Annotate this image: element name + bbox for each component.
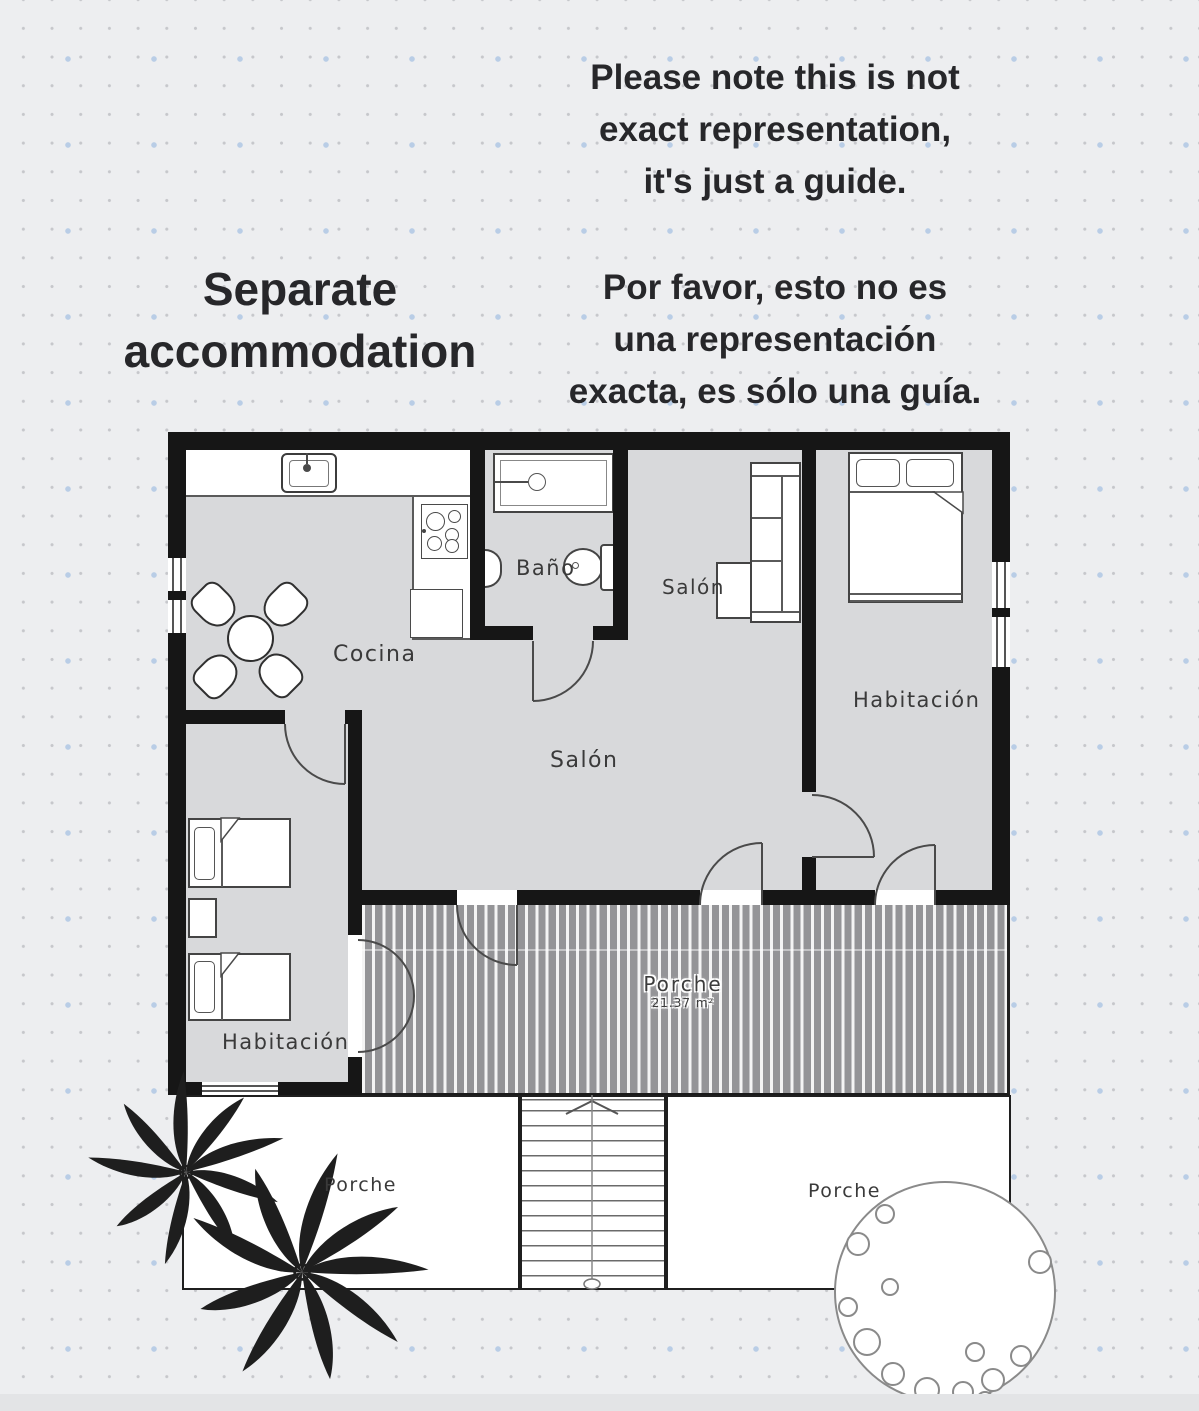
room-label-deck: Porche 21.37 m² xyxy=(623,972,743,1010)
room-label-habitacion-right: Habitación xyxy=(853,688,980,712)
double-door-arc xyxy=(358,940,414,996)
page: Please note this is not exact representa… xyxy=(0,0,1199,1411)
palm-tree-icon xyxy=(151,1116,457,1411)
door-arc xyxy=(812,795,874,857)
door-arc xyxy=(457,905,517,965)
bottom-margin-band xyxy=(0,1394,1199,1411)
room-label-salon-main: Salón xyxy=(550,748,618,773)
door-arc xyxy=(875,845,935,905)
bed-fold-icon xyxy=(221,492,963,976)
double-door-arc xyxy=(358,996,414,1052)
room-label-porche-left: Porche xyxy=(324,1174,397,1196)
room-label-bano: Baño xyxy=(516,556,575,580)
room-label-porche-right: Porche xyxy=(808,1180,881,1202)
deck-label-name: Porche xyxy=(623,972,743,996)
door-arc xyxy=(700,843,762,905)
room-label-cocina: Cocina xyxy=(333,642,416,667)
deck-label-area: 21.37 m² xyxy=(623,996,743,1010)
door-arc xyxy=(285,724,345,784)
room-label-salon-top: Salón xyxy=(662,575,725,599)
door-arc xyxy=(533,641,593,701)
room-label-habitacion-left: Habitación xyxy=(222,1030,349,1054)
plan-annotations xyxy=(0,0,1199,1411)
palm-tree-icon xyxy=(87,1071,286,1266)
stairs-details xyxy=(566,1095,618,1289)
bush-icon xyxy=(835,1182,1055,1411)
